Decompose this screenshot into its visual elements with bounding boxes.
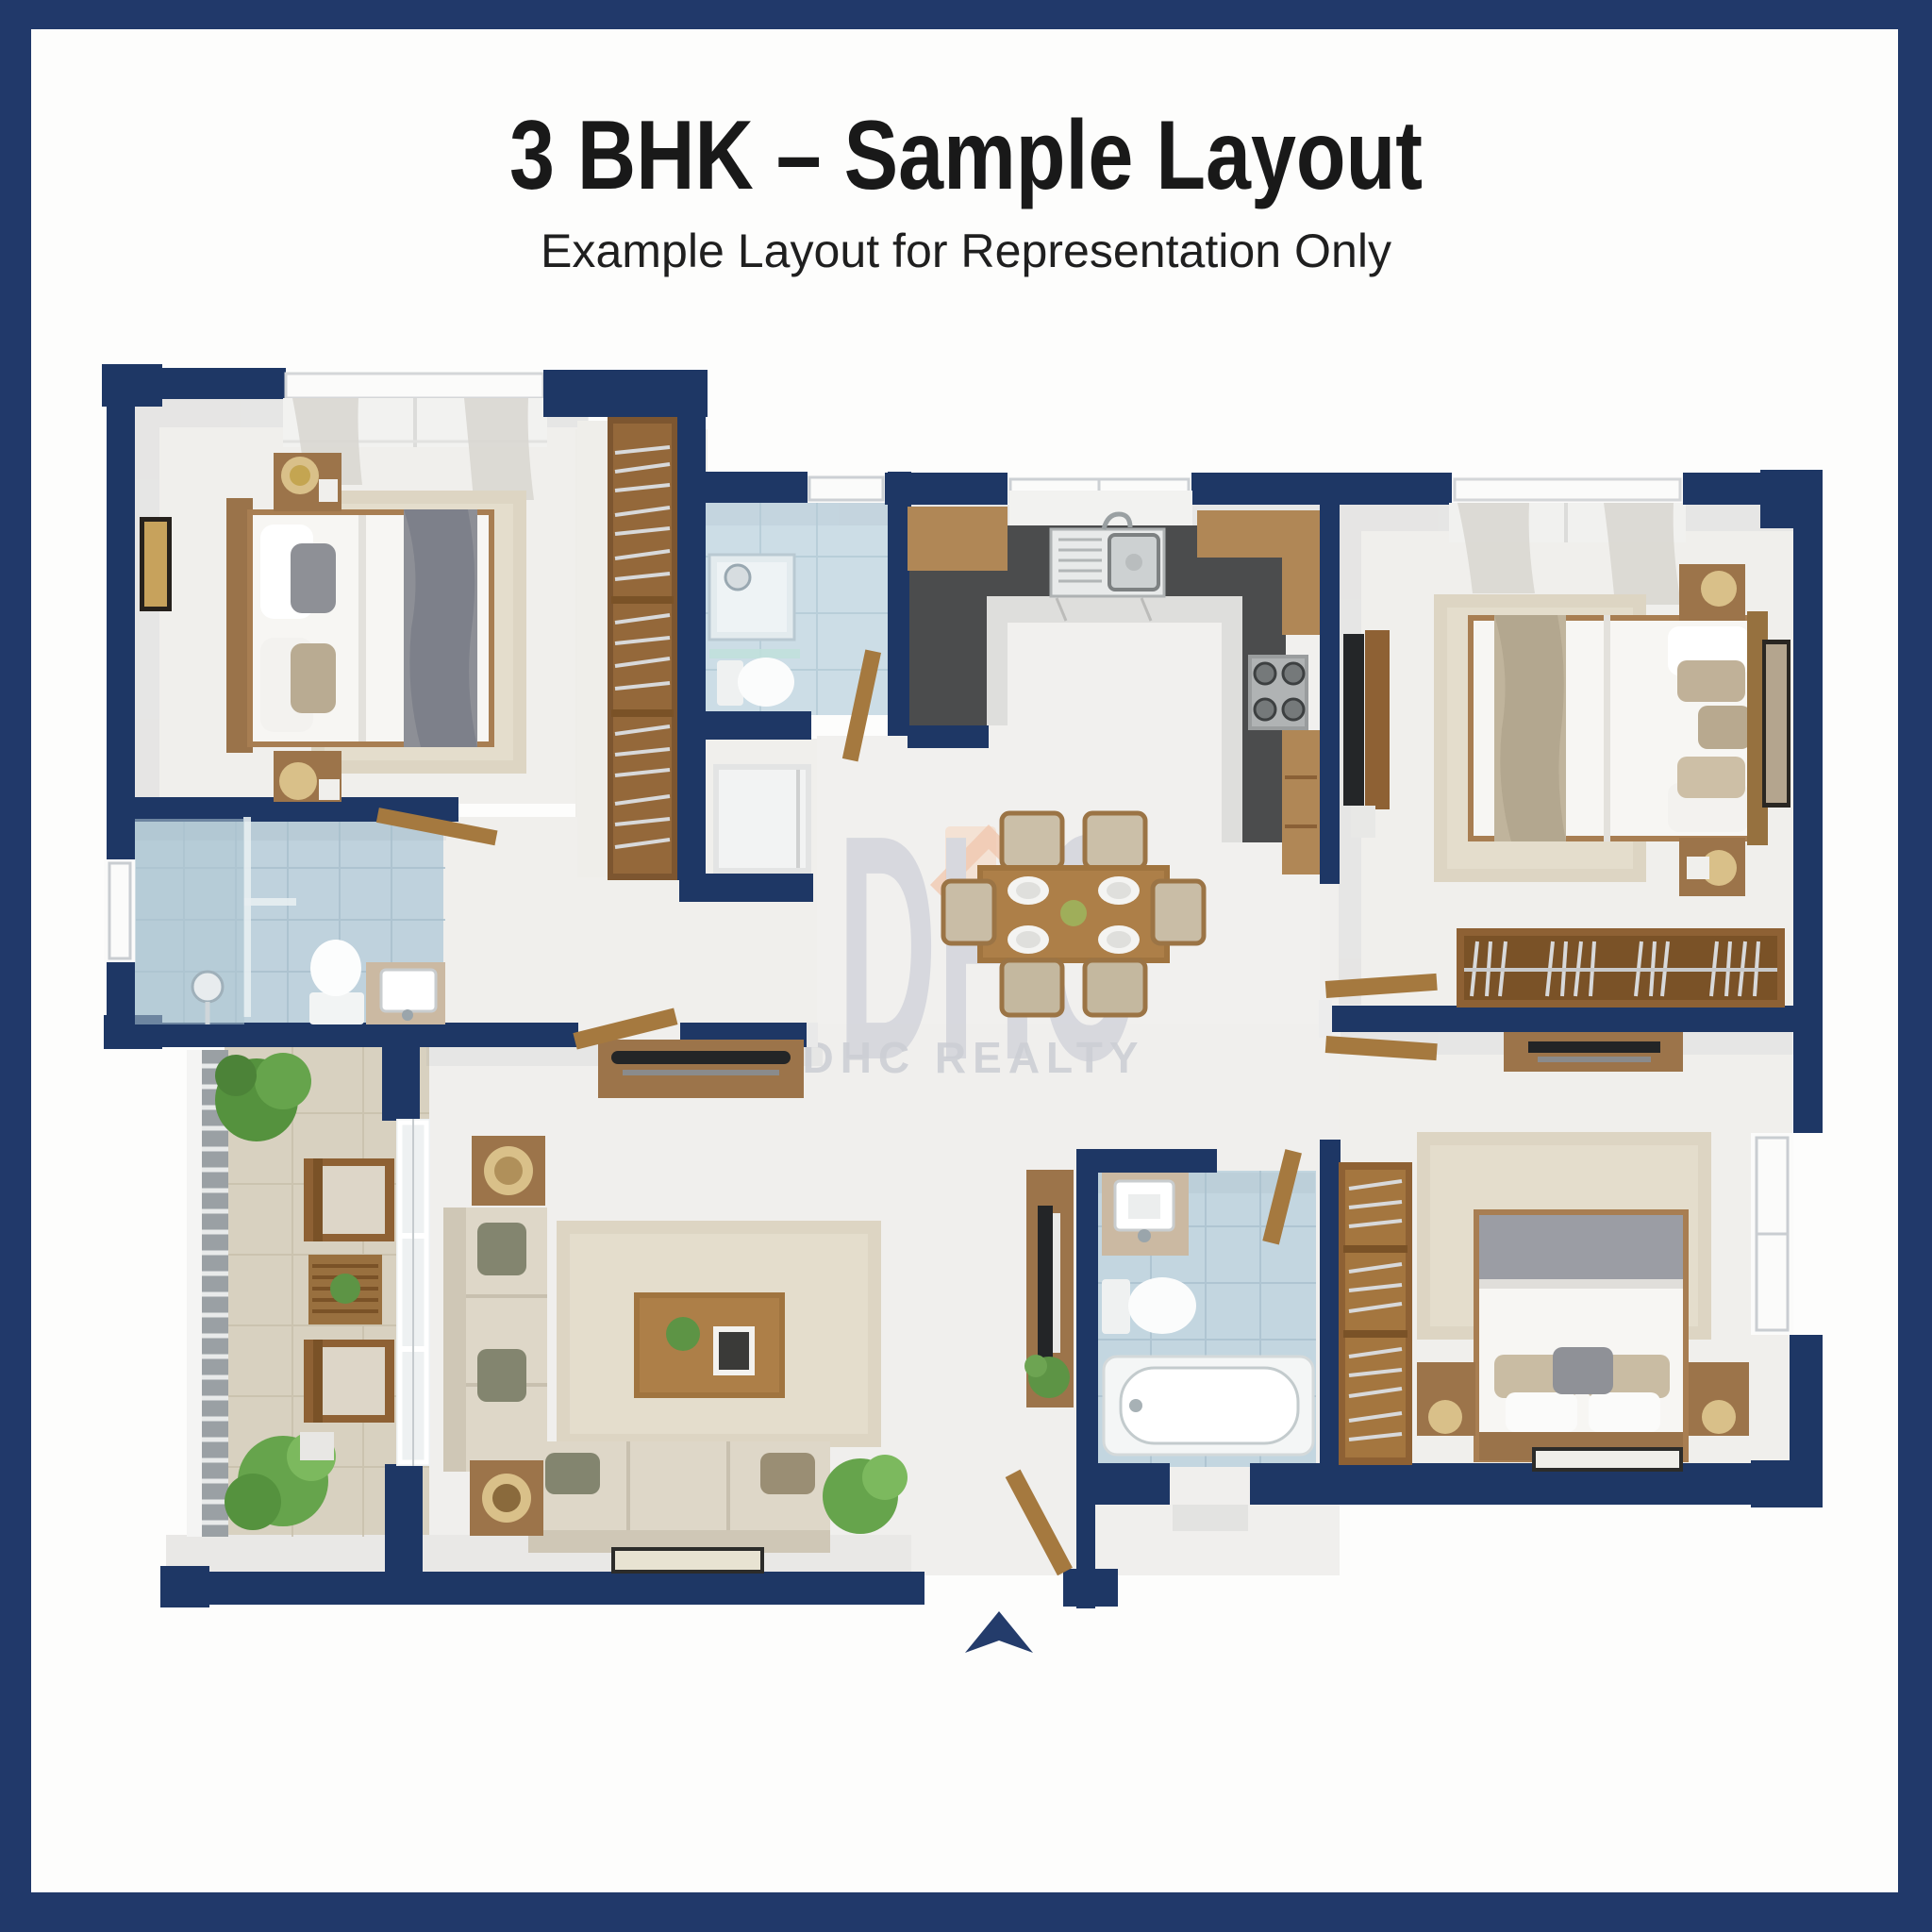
svg-text:3 BHK – Sample Layout: 3 BHK – Sample Layout bbox=[509, 101, 1423, 210]
svg-text:DHC REALTY: DHC REALTY bbox=[802, 1033, 1144, 1082]
svg-text:Example Layout for Representat: Example Layout for Representation Only bbox=[541, 225, 1391, 277]
